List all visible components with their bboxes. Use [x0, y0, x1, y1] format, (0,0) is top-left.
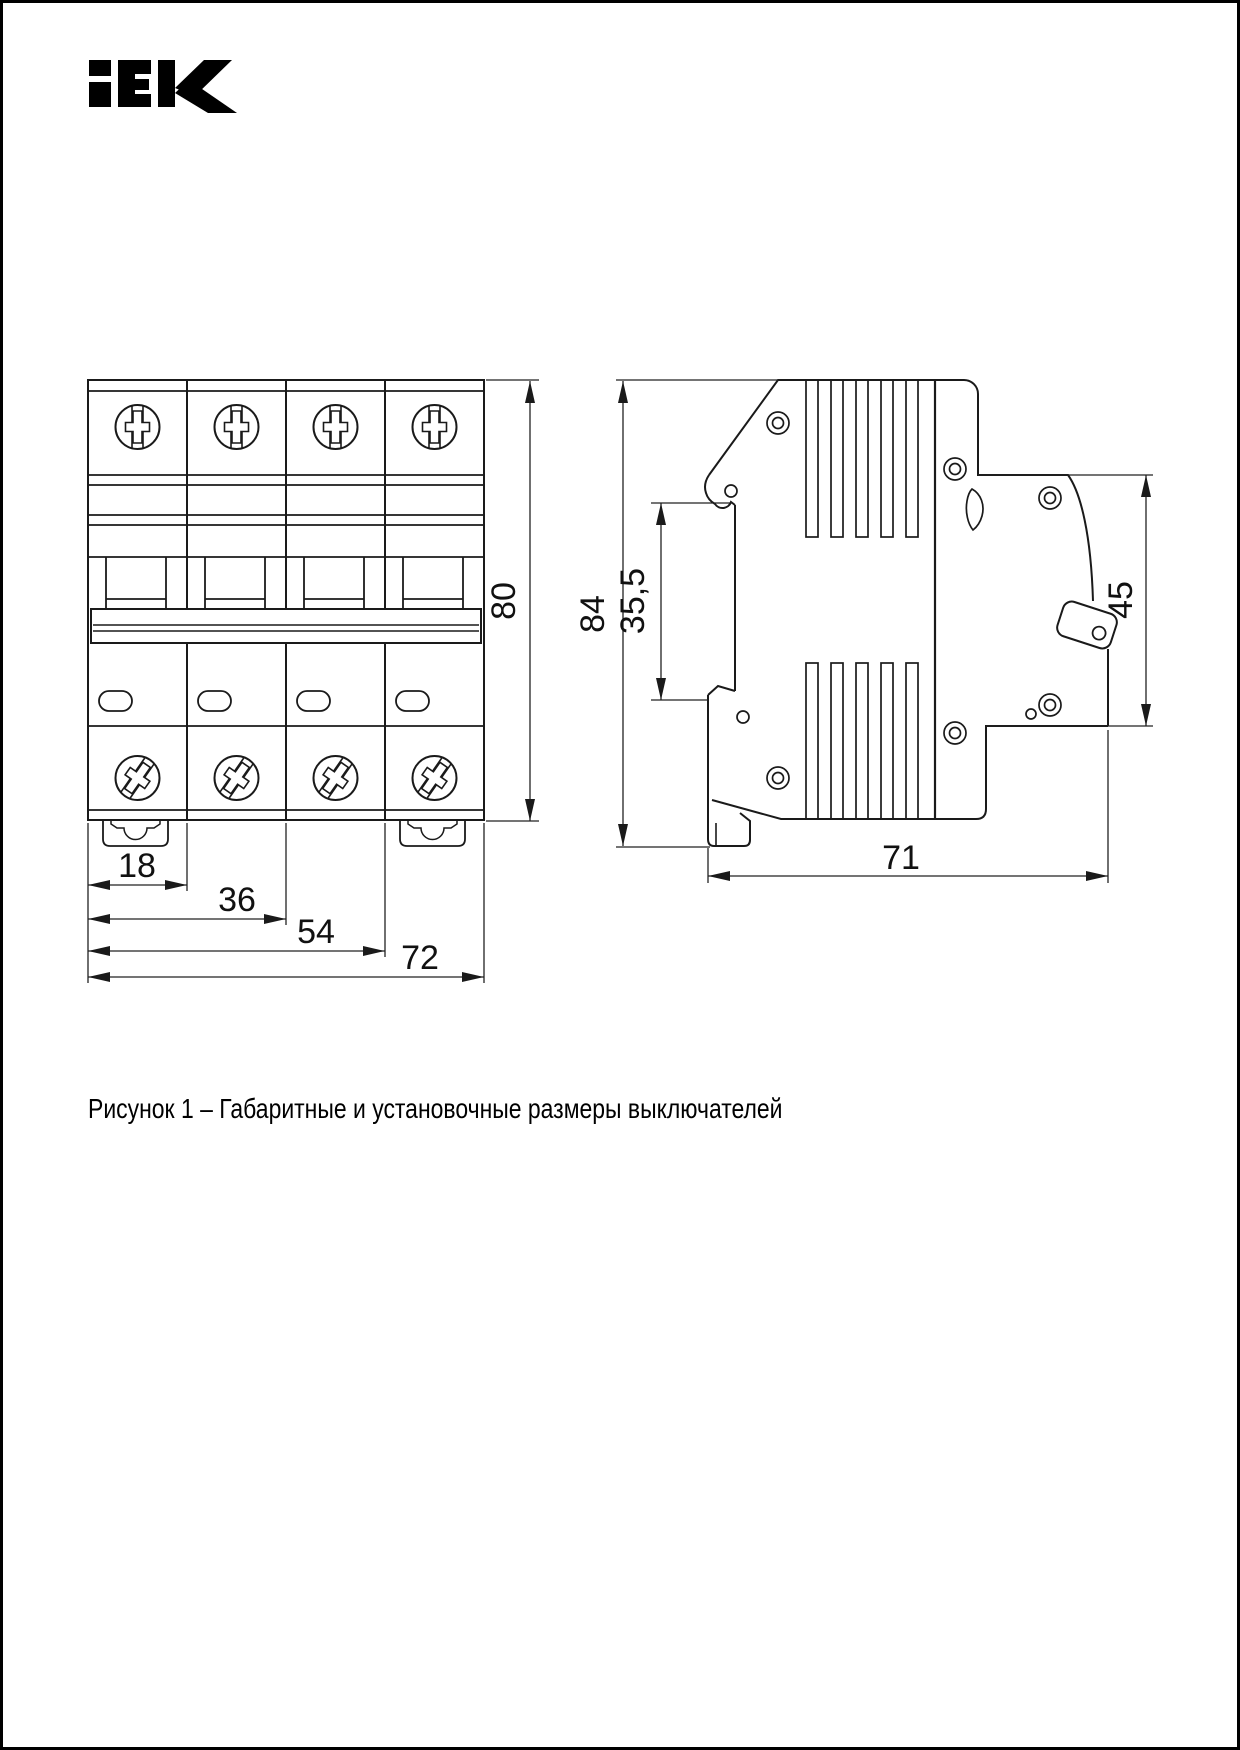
vent-slots-lower	[806, 663, 918, 819]
screw-icon	[314, 754, 358, 802]
latch	[708, 695, 750, 846]
logo-i-stem	[89, 82, 111, 107]
toggle-handles	[106, 557, 463, 609]
logo-e-bar	[118, 94, 151, 107]
module-dividers	[187, 380, 385, 820]
front-view	[88, 380, 484, 846]
tie-bar	[91, 609, 481, 643]
screw-icon	[215, 405, 259, 449]
din-clip	[400, 820, 465, 846]
technical-drawing: iEK	[3, 3, 1240, 1750]
dim-label-54: 54	[297, 913, 335, 951]
logo-e-bar	[118, 60, 151, 74]
logo-k-stem	[158, 60, 175, 107]
screw-icon	[215, 754, 259, 802]
rivets	[767, 412, 1061, 789]
dim-label-18: 18	[118, 847, 156, 885]
extension-lines-front	[88, 380, 539, 983]
document-page: iEK	[0, 0, 1240, 1750]
screw-icon	[116, 754, 160, 802]
dim-label-35-5: 35,5	[614, 568, 652, 634]
screw-icon	[413, 405, 457, 449]
crescent-slot	[966, 489, 983, 530]
latch-hook	[708, 686, 735, 695]
screw-icon	[116, 405, 160, 449]
dim-label-80: 80	[485, 582, 523, 620]
label-windows	[99, 691, 429, 711]
dim-label-84: 84	[574, 595, 612, 633]
din-clip	[103, 820, 168, 846]
figure-caption: Рисунок 1 – Габаритные и установочные ра…	[88, 1093, 783, 1125]
logo-e-bar	[118, 79, 149, 90]
screw-icon	[413, 754, 457, 802]
screw-icon	[314, 405, 358, 449]
dim-label-72: 72	[401, 939, 439, 977]
iek-logo	[89, 60, 237, 113]
dim-label-45: 45	[1102, 581, 1140, 619]
logo-i-dot	[89, 60, 111, 76]
side-outline	[709, 380, 1093, 601]
dim-label-36: 36	[218, 881, 256, 919]
side-bottom	[712, 726, 1108, 819]
vent-slots-upper	[806, 380, 918, 537]
dim-label-71: 71	[882, 839, 920, 877]
side-view	[705, 380, 1119, 846]
